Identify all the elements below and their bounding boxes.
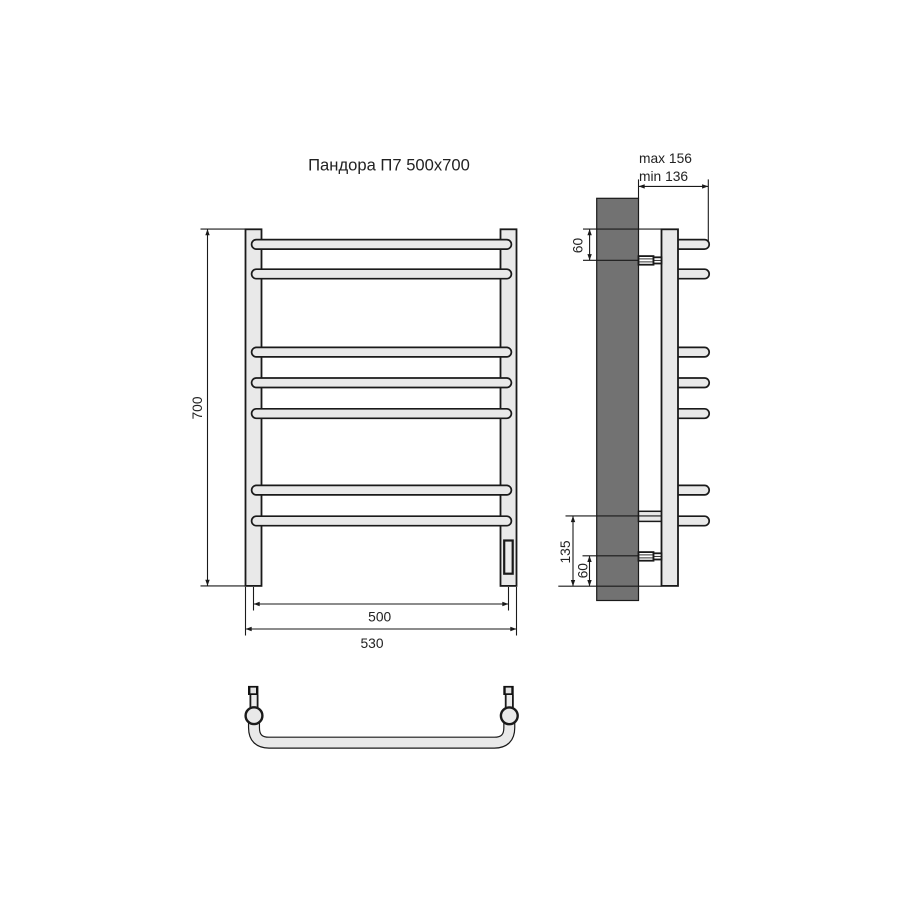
svg-text:60: 60 — [576, 563, 591, 579]
svg-text:530: 530 — [360, 636, 383, 651]
svg-text:min 136: min 136 — [639, 169, 688, 184]
svg-text:max 156: max 156 — [639, 151, 692, 166]
svg-text:Пандора П7 500x700: Пандора П7 500x700 — [308, 155, 470, 174]
svg-text:60: 60 — [570, 238, 585, 254]
svg-text:135: 135 — [558, 540, 573, 563]
svg-text:500: 500 — [368, 609, 391, 624]
svg-text:700: 700 — [190, 396, 205, 419]
